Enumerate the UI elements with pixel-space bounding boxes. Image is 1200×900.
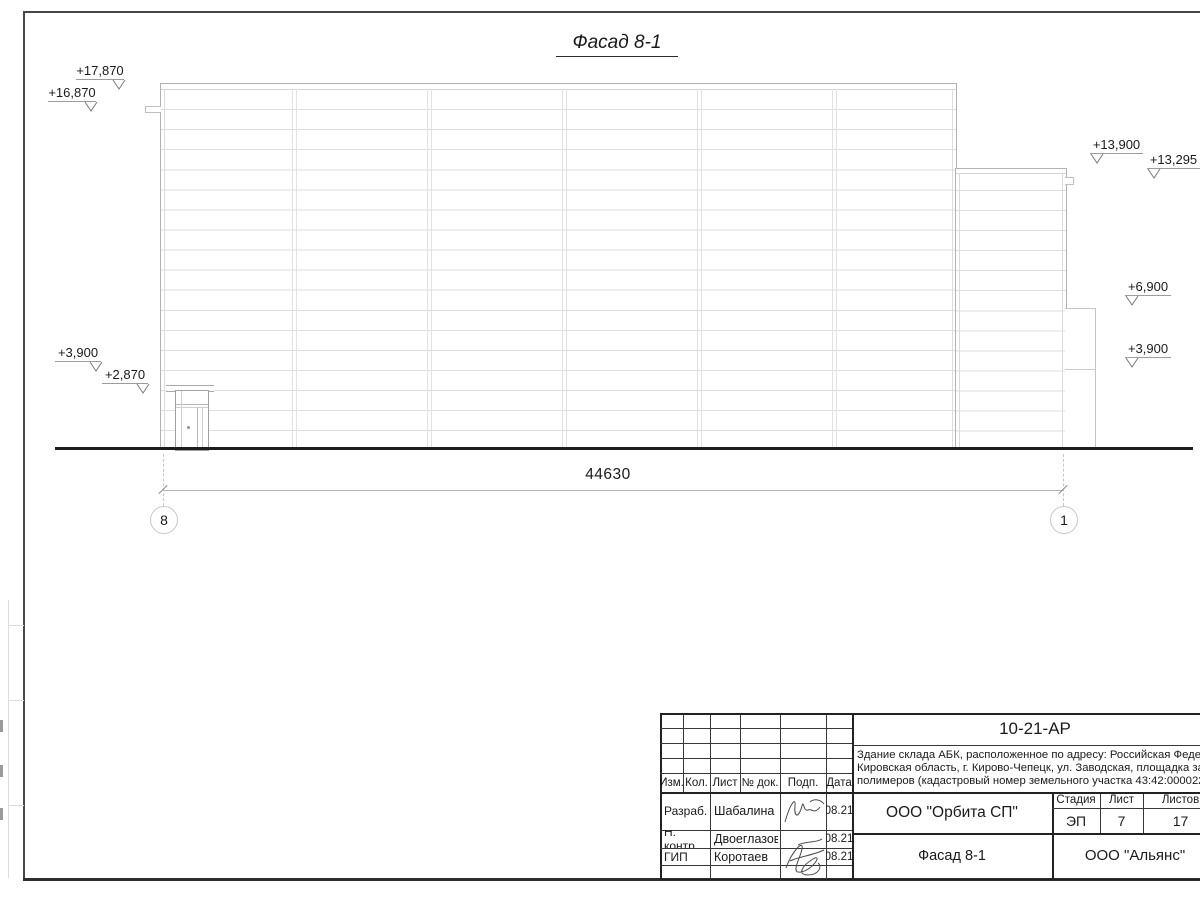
tb-date: 08.21 <box>826 848 852 865</box>
elevation-mark-plus-17870: +17,870 <box>76 63 124 80</box>
description-line: Здание склада АБК, расположенное по адре… <box>857 749 1200 762</box>
margin-text-mark <box>0 765 3 777</box>
facade-panel-field <box>956 173 1066 450</box>
extension-line-left <box>163 454 164 506</box>
panel-edge-line <box>1062 173 1063 450</box>
elevation-label: +3,900 <box>1125 341 1171 358</box>
elevation-mark-plus-16870: +16,870 <box>48 85 96 102</box>
ground-line <box>55 447 1193 450</box>
tb-role: ГИП <box>664 848 710 865</box>
tb-stage-value: ЭП <box>1052 808 1100 833</box>
door-frame-line <box>181 391 182 450</box>
signature-shabalina <box>781 794 826 829</box>
tb-organization: ООО "Орбита СП" <box>852 792 1052 833</box>
tb-name: Коротаев <box>714 848 778 865</box>
tb-role: Н. контр. <box>664 830 710 848</box>
door-leaf-line <box>197 407 198 450</box>
elevation-arrow-icon <box>112 80 126 90</box>
tb-header-data: Дата <box>826 773 852 792</box>
margin-text-mark <box>0 720 3 732</box>
margin-text-mark <box>0 808 3 820</box>
elevation-mark-plus-13295: +13,295 <box>1147 152 1200 169</box>
frame-left-line <box>23 11 25 880</box>
tb-line <box>660 879 1200 881</box>
panel-joint <box>562 89 567 450</box>
door-handle <box>187 426 190 429</box>
tb-date: 08.21 <box>826 792 852 830</box>
elevation-label: +2,870 <box>102 367 148 384</box>
frame-margin-line <box>8 600 9 878</box>
facade-main-block <box>160 83 957 450</box>
axis-bubble-8: 8 <box>150 506 178 534</box>
tb-header-doc: № док. <box>740 773 780 792</box>
description-line: Кировская область, г. Кирово-Чепецк, ул.… <box>857 762 1200 775</box>
panel-joint <box>292 89 297 450</box>
elevation-label: +17,870 <box>76 63 124 80</box>
tb-sheet-header: Лист <box>1100 792 1143 808</box>
facade-lower-block <box>955 168 1067 450</box>
elevation-label: +6,900 <box>1125 279 1171 296</box>
entrance-door <box>175 390 209 451</box>
elevation-label: +16,870 <box>48 85 96 102</box>
tb-header-list: Лист <box>710 773 740 792</box>
panel-joint <box>697 89 702 450</box>
tb-line <box>660 713 662 880</box>
elevation-label: +3,900 <box>55 345 101 362</box>
axis-bubble-1: 1 <box>1050 506 1078 534</box>
panel-edge-line <box>164 89 165 450</box>
axis-label: 8 <box>160 512 168 528</box>
elevation-mark-plus-3900-left: +3,900 <box>55 345 101 362</box>
margin-divider <box>8 805 24 806</box>
elevation-label: +13,295 <box>1147 152 1200 169</box>
tb-header-izm: Изм. <box>660 773 683 792</box>
frame-top-line <box>24 11 1200 13</box>
tb-line <box>660 728 852 729</box>
tb-role: Разраб. <box>664 792 710 830</box>
elevation-arrow-icon <box>1125 296 1139 306</box>
elevation-label: +13,900 <box>1090 137 1143 154</box>
panel-edge-line <box>959 173 960 450</box>
elevation-arrow-icon <box>84 102 98 112</box>
dimension-line <box>163 490 1063 491</box>
panel-edge-line <box>952 89 953 450</box>
roof-ledge-right <box>1065 177 1074 185</box>
description-line: полимеров (кадастровый номер земельного … <box>857 775 1200 788</box>
tb-doc-number: 10-21-АР <box>852 713 1200 745</box>
drawing-view-title: Фасад 8-1 <box>556 32 678 57</box>
roof-ledge-left <box>145 106 161 113</box>
elevation-mark-plus-13900: +13,900 <box>1090 137 1143 154</box>
dimension-value: 44630 <box>553 466 663 484</box>
elevation-arrow-icon <box>89 362 103 372</box>
elevation-mark-plus-2870: +2,870 <box>102 367 148 384</box>
drawing-sheet: Фасад 8-1 +17,870 +16, <box>0 0 1200 900</box>
elevation-mark-plus-6900: +6,900 <box>1125 279 1171 296</box>
tb-line <box>660 743 852 744</box>
tb-header-podp: Подп. <box>780 773 826 792</box>
tb-project-description: Здание склада АБК, расположенное по адре… <box>852 745 1200 796</box>
elevation-arrow-icon <box>1090 154 1104 164</box>
tb-sheets-header: Листов <box>1143 792 1200 808</box>
facade-annex <box>1065 308 1096 450</box>
tb-customer: ООО "Альянс" <box>1052 833 1200 878</box>
tb-stage-header: Стадия <box>1052 792 1100 808</box>
tb-sheet-title: Фасад 8-1 <box>852 833 1052 878</box>
tb-date: 08.21 <box>826 830 852 848</box>
tb-name: Двоеглазов <box>714 830 778 848</box>
margin-divider <box>8 625 24 626</box>
tb-header-kol: Кол. <box>683 773 710 792</box>
panel-joint <box>832 89 837 450</box>
door-frame-line <box>202 407 203 450</box>
tb-name: Шабалина <box>714 792 778 830</box>
axis-label: 1 <box>1060 512 1068 528</box>
elevation-arrow-icon <box>136 384 150 394</box>
signature-dvoeglazov-korotaev <box>778 831 828 878</box>
tb-line <box>710 713 711 880</box>
elevation-arrow-icon <box>1125 358 1139 368</box>
tb-sheets-value: 17 <box>1143 808 1200 833</box>
elevation-mark-plus-3900-right: +3,900 <box>1125 341 1171 358</box>
annex-level-line <box>1065 369 1095 370</box>
extension-line-right <box>1063 454 1064 506</box>
title-block: Изм. Кол. Лист № док. Подп. Дата Разраб.… <box>660 713 1200 880</box>
elevation-arrow-icon <box>1147 169 1161 179</box>
tb-line <box>660 758 852 759</box>
tb-sheet-value: 7 <box>1100 808 1143 833</box>
margin-divider <box>8 700 24 701</box>
panel-joint <box>427 89 432 450</box>
